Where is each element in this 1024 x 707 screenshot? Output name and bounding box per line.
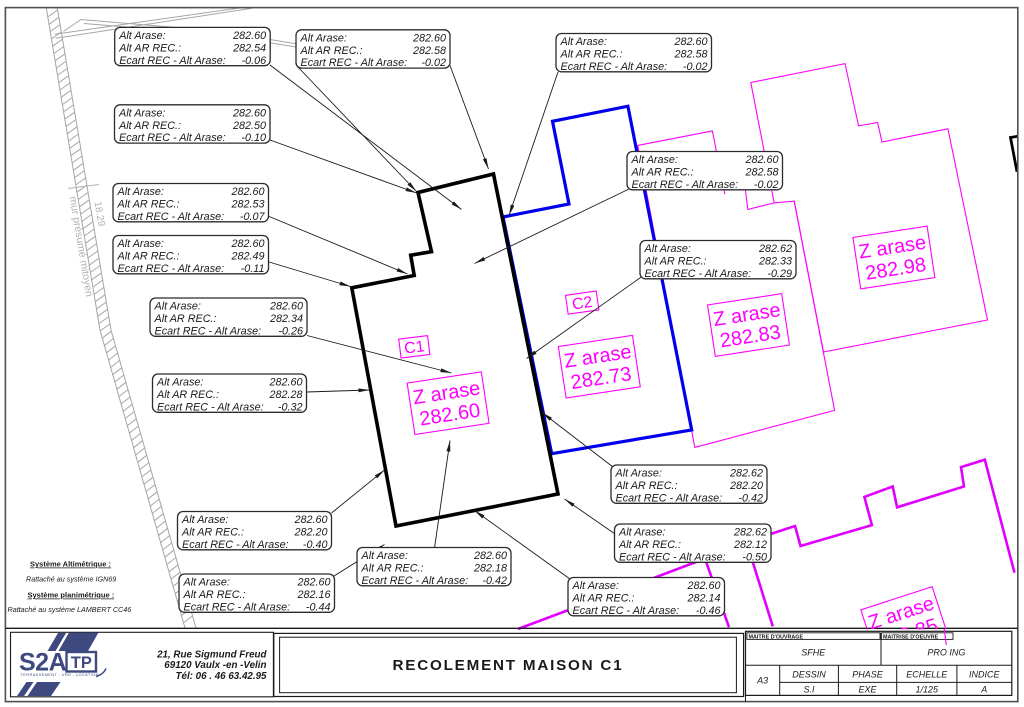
- svg-text:Ecart REC - Alt Arase:: Ecart REC - Alt Arase:: [616, 492, 723, 504]
- svg-text:Alt AR REC.:: Alt AR REC.:: [300, 45, 363, 57]
- svg-text:282.12: 282.12: [733, 539, 767, 551]
- svg-text:Alt AR REC.:: Alt AR REC.:: [154, 313, 217, 325]
- svg-text:282.14: 282.14: [686, 593, 720, 605]
- svg-text:-0.02: -0.02: [683, 61, 708, 73]
- svg-text:282.60: 282.60: [268, 377, 302, 389]
- svg-text:Alt Arase:: Alt Arase:: [154, 301, 201, 313]
- svg-text:282.60: 282.60: [296, 577, 330, 589]
- svg-text:282.34: 282.34: [269, 313, 303, 325]
- svg-text:Alt AR REC.:: Alt AR REC.:: [618, 539, 681, 551]
- svg-text:282.60: 282.60: [473, 550, 507, 562]
- svg-text:Alt AR REC.:: Alt AR REC.:: [181, 527, 244, 539]
- svg-text:282.16: 282.16: [296, 589, 330, 601]
- svg-text:MAITRISE D'OEUVRE: MAITRISE D'OEUVRE: [883, 634, 939, 640]
- svg-text:21, Rue Sigmund Freud: 21, Rue Sigmund Freud: [156, 649, 267, 660]
- svg-text:282.20: 282.20: [729, 480, 763, 492]
- svg-text:282.60: 282.60: [232, 30, 266, 42]
- svg-text:Alt AR REC.:: Alt AR REC.:: [118, 120, 181, 132]
- svg-text:282.60: 282.60: [744, 154, 778, 166]
- svg-text:Ecart REC - Alt Arase:: Ecart REC - Alt Arase:: [119, 55, 226, 67]
- svg-text:282.49: 282.49: [230, 251, 264, 263]
- svg-text:DESSIN: DESSIN: [792, 669, 826, 679]
- svg-text:-0.02: -0.02: [421, 57, 446, 69]
- svg-text:-0.26: -0.26: [278, 325, 303, 337]
- svg-text:-0.42: -0.42: [738, 492, 763, 504]
- svg-text:Alt Arase:: Alt Arase:: [572, 580, 619, 592]
- svg-text:Alt AR REC.:: Alt AR REC.:: [361, 563, 424, 575]
- svg-text:282.60: 282.60: [232, 107, 266, 119]
- svg-text:Alt AR REC.:: Alt AR REC.:: [156, 389, 219, 401]
- svg-text:Alt Arase:: Alt Arase:: [644, 243, 691, 255]
- svg-text:Ecart REC - Alt Arase:: Ecart REC - Alt Arase:: [362, 575, 469, 587]
- svg-text:282.60: 282.60: [230, 238, 264, 250]
- svg-text:Alt AR REC.:: Alt AR REC.:: [117, 199, 180, 211]
- svg-text:282.58: 282.58: [673, 49, 707, 61]
- svg-text:Alt Arase:: Alt Arase:: [560, 36, 607, 48]
- svg-text:Ecart REC - Alt Arase:: Ecart REC - Alt Arase:: [118, 263, 225, 275]
- svg-text:-0.10: -0.10: [241, 132, 266, 144]
- svg-text:Alt Arase:: Alt Arase:: [118, 107, 165, 119]
- svg-text:-0.06: -0.06: [242, 55, 267, 67]
- svg-text:282.62: 282.62: [758, 243, 792, 255]
- svg-text:282.62: 282.62: [729, 468, 763, 480]
- svg-text:Ecart REC - Alt Arase:: Ecart REC - Alt Arase:: [157, 401, 264, 413]
- svg-text:TERRASSEMENT - VRD - LOCATION: TERRASSEMENT - VRD - LOCATION: [21, 672, 99, 677]
- svg-text:-0.32: -0.32: [278, 401, 303, 413]
- svg-text:Ecart REC - Alt Arase:: Ecart REC - Alt Arase:: [184, 601, 291, 613]
- svg-text:282.58: 282.58: [412, 45, 446, 57]
- svg-text:Rattaché au système IGN69: Rattaché au système IGN69: [26, 575, 116, 584]
- svg-text:Système planimétrique :: Système planimétrique :: [28, 591, 115, 600]
- svg-text:SFHE: SFHE: [801, 648, 826, 658]
- svg-text:Ecart REC - Alt Arase:: Ecart REC - Alt Arase:: [573, 605, 680, 617]
- svg-text:EXE: EXE: [858, 684, 877, 694]
- svg-text:-0.42: -0.42: [482, 575, 507, 587]
- svg-text:282.60: 282.60: [293, 514, 327, 526]
- svg-text:Ecart REC - Alt Arase:: Ecart REC - Alt Arase:: [118, 211, 225, 223]
- svg-text:69120 Vaulx -en -Velin: 69120 Vaulx -en -Velin: [164, 660, 266, 671]
- svg-text:282.50: 282.50: [232, 120, 266, 132]
- svg-text:Alt AR REC.:: Alt AR REC.:: [572, 593, 635, 605]
- svg-text:282.60: 282.60: [412, 32, 446, 44]
- svg-text:Alt Arase:: Alt Arase:: [118, 30, 165, 42]
- svg-text:282.62: 282.62: [733, 527, 767, 539]
- svg-text:Alt Arase:: Alt Arase:: [117, 186, 164, 198]
- svg-text:-0.44: -0.44: [306, 601, 331, 613]
- svg-text:282.33: 282.33: [758, 256, 792, 268]
- svg-text:Alt Arase:: Alt Arase:: [156, 377, 203, 389]
- svg-text:-0.46: -0.46: [696, 605, 721, 617]
- svg-text:Ecart REC - Alt Arase:: Ecart REC - Alt Arase:: [561, 61, 668, 73]
- svg-text:INDICE: INDICE: [969, 669, 1000, 679]
- svg-text:Alt AR REC.:: Alt AR REC.:: [117, 251, 180, 263]
- svg-text:Alt Arase:: Alt Arase:: [631, 154, 678, 166]
- svg-text:-0.11: -0.11: [241, 263, 265, 275]
- svg-text:282.58: 282.58: [744, 167, 778, 179]
- svg-text:ECHELLE: ECHELLE: [906, 669, 948, 679]
- svg-text:Système Altimétrique :: Système Altimétrique :: [30, 560, 111, 569]
- svg-text:Ecart REC - Alt Arase:: Ecart REC - Alt Arase:: [645, 268, 752, 280]
- svg-text:RECOLEMENT MAISON C1: RECOLEMENT MAISON C1: [393, 657, 624, 674]
- svg-text:Alt Arase:: Alt Arase:: [615, 468, 662, 480]
- svg-text:Alt Arase:: Alt Arase:: [300, 32, 347, 44]
- svg-text:Alt AR REC.:: Alt AR REC.:: [631, 167, 694, 179]
- svg-text:C1: C1: [403, 338, 425, 357]
- svg-text:282.20: 282.20: [293, 527, 327, 539]
- svg-text:Rattaché au système LAMBERT CC: Rattaché au système LAMBERT CC46: [8, 605, 132, 614]
- svg-text:C2: C2: [571, 294, 594, 314]
- svg-text:Alt AR REC.:: Alt AR REC.:: [183, 589, 246, 601]
- svg-text:282.60: 282.60: [673, 36, 707, 48]
- svg-text:-0.07: -0.07: [240, 211, 266, 223]
- svg-text:1/125: 1/125: [916, 684, 940, 694]
- svg-text:-0.29: -0.29: [767, 268, 792, 280]
- svg-text:Ecart REC - Alt Arase:: Ecart REC - Alt Arase:: [632, 179, 739, 191]
- svg-text:Alt AR REC.:: Alt AR REC.:: [644, 256, 707, 268]
- svg-text:282.28: 282.28: [268, 389, 302, 401]
- svg-text:Ecart REC - Alt Arase:: Ecart REC - Alt Arase:: [301, 57, 408, 69]
- svg-text:TP: TP: [71, 654, 92, 672]
- svg-text:Alt AR REC.:: Alt AR REC.:: [560, 49, 623, 61]
- svg-text:PRO ING: PRO ING: [927, 648, 965, 658]
- svg-text:Alt Arase:: Alt Arase:: [361, 550, 408, 562]
- svg-text:282.60: 282.60: [269, 301, 303, 313]
- svg-text:-0.02: -0.02: [754, 179, 779, 191]
- svg-text:-0.50: -0.50: [742, 551, 767, 563]
- svg-text:MAITRE D'OUVRAGE: MAITRE D'OUVRAGE: [749, 634, 804, 640]
- svg-text:282.18: 282.18: [473, 563, 507, 575]
- svg-text:Ecart REC - Alt Arase:: Ecart REC - Alt Arase:: [155, 325, 262, 337]
- svg-text:Alt Arase:: Alt Arase:: [618, 527, 665, 539]
- svg-text:Tél: 06 . 46 63.42.95: Tél: 06 . 46 63.42.95: [176, 671, 268, 682]
- svg-text:Ecart REC - Alt Arase:: Ecart REC - Alt Arase:: [619, 551, 726, 563]
- svg-text:282.60: 282.60: [686, 580, 720, 592]
- svg-text:Alt Arase:: Alt Arase:: [183, 577, 230, 589]
- svg-text:A3: A3: [756, 676, 768, 686]
- svg-text:282.60: 282.60: [230, 186, 264, 198]
- svg-text:282.53: 282.53: [230, 199, 264, 211]
- svg-text:S.I: S.I: [803, 684, 815, 694]
- svg-text:Alt AR REC.:: Alt AR REC.:: [118, 42, 181, 54]
- svg-text:Ecart REC - Alt Arase:: Ecart REC - Alt Arase:: [119, 132, 226, 144]
- svg-text:PHASE: PHASE: [852, 669, 884, 679]
- svg-text:Alt AR REC.:: Alt AR REC.:: [615, 480, 678, 492]
- svg-text:282.54: 282.54: [232, 42, 266, 54]
- svg-text:-0.40: -0.40: [303, 539, 328, 551]
- svg-text:A: A: [980, 684, 987, 694]
- svg-text:Alt Arase:: Alt Arase:: [117, 238, 164, 250]
- svg-text:Ecart REC - Alt Arase:: Ecart REC - Alt Arase:: [182, 539, 289, 551]
- svg-text:Alt Arase:: Alt Arase:: [181, 514, 228, 526]
